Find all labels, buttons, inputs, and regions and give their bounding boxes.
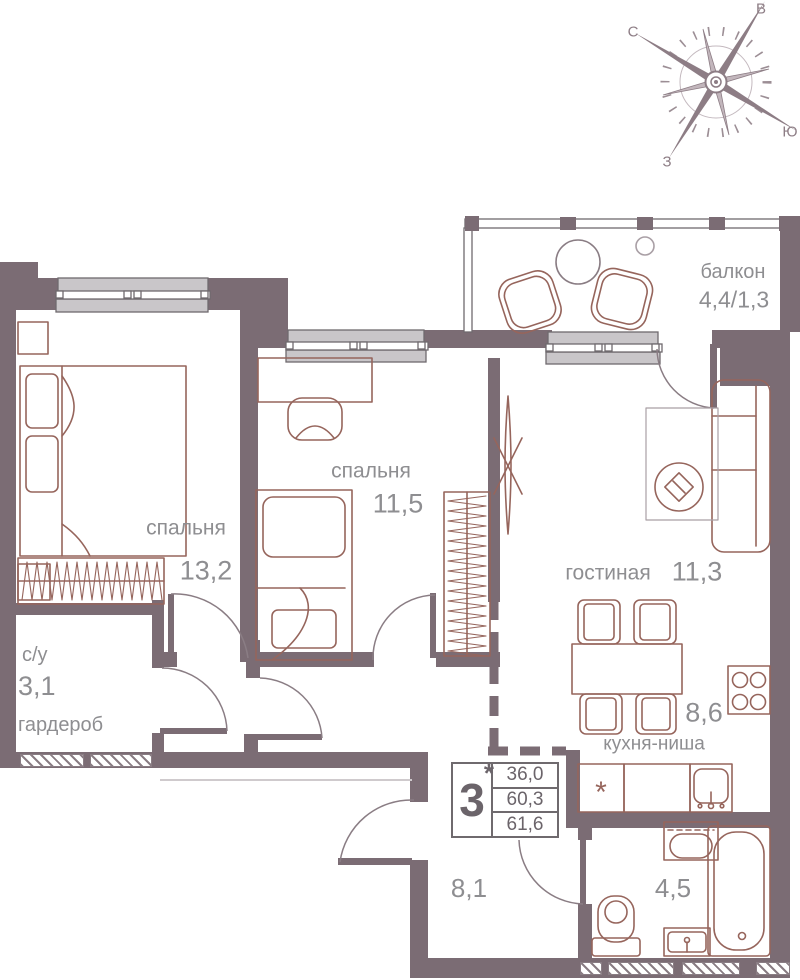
room-label-balcony: балкон bbox=[701, 262, 766, 282]
room-label-kitchen: кухня-ниша bbox=[603, 735, 705, 754]
kitchen-sink-icon bbox=[690, 764, 732, 812]
door-leaf bbox=[430, 593, 436, 658]
armchair-icon bbox=[495, 267, 566, 338]
chair-icon bbox=[580, 694, 622, 734]
room-area-kitchen: 8,6 bbox=[685, 700, 723, 727]
niche-dashed-wall bbox=[488, 600, 566, 751]
wardrobe-hangers-icon bbox=[444, 492, 490, 656]
entry-door-leaf bbox=[338, 858, 412, 865]
balcony-small-circle bbox=[636, 237, 654, 255]
door-leaf bbox=[168, 594, 174, 658]
room-label-su: с/у bbox=[22, 645, 48, 665]
wall-segment bbox=[16, 278, 62, 310]
stamp-rooms-count: 3 bbox=[459, 777, 485, 823]
room-area-su: 3,1 bbox=[18, 673, 56, 700]
wall-segment bbox=[152, 733, 164, 753]
door-leaf bbox=[160, 728, 227, 734]
exterior-edge-line bbox=[160, 779, 412, 781]
wall-segment bbox=[0, 278, 16, 768]
room-label-bedroom2: спальня bbox=[331, 461, 411, 482]
floor-plan: С В Ю З балкон 4,4/1,3 спальня 13,2 спал… bbox=[0, 0, 800, 980]
bathtub-icon bbox=[708, 826, 770, 956]
door-leaf bbox=[256, 734, 322, 740]
wardrobe-door-arc bbox=[162, 668, 227, 731]
room-area-hall: 8,1 bbox=[451, 875, 487, 901]
wall-segment bbox=[424, 330, 464, 348]
balcony-door-arc bbox=[657, 349, 714, 408]
wall-segment bbox=[566, 812, 790, 828]
chair-icon bbox=[636, 694, 676, 734]
room-label-living: гостиная bbox=[565, 563, 650, 584]
window bbox=[546, 332, 662, 364]
stamp-area: 60,3 bbox=[493, 787, 557, 812]
nightstand-icon bbox=[18, 564, 50, 600]
wall-segment bbox=[770, 330, 790, 978]
room-label-wardrobe: гардероб bbox=[18, 715, 103, 735]
chair-icon bbox=[578, 600, 620, 644]
chair-icon bbox=[288, 398, 342, 440]
nightstand-icon bbox=[18, 322, 48, 354]
counter-icon bbox=[624, 764, 690, 812]
window bbox=[286, 330, 428, 362]
wall-segment bbox=[436, 652, 500, 667]
stamp-rooms-count-cell: 3 * bbox=[453, 764, 493, 836]
compass-label-east: В bbox=[756, 2, 766, 17]
toilet-icon bbox=[592, 896, 640, 956]
rug-icon bbox=[646, 408, 718, 520]
wall-segment bbox=[16, 603, 164, 615]
vent-hatch bbox=[90, 754, 152, 767]
wall-segment bbox=[256, 330, 290, 348]
wall-segment bbox=[488, 358, 500, 602]
stove-icon bbox=[728, 666, 770, 714]
sofa-icon bbox=[712, 380, 770, 552]
room-area-balcony: 4,4/1,3 bbox=[699, 289, 769, 312]
entry-door-arc bbox=[340, 800, 414, 862]
compass-label-south: Ю bbox=[782, 125, 797, 140]
fridge-symbol: * bbox=[595, 778, 607, 808]
door-leaf bbox=[710, 344, 717, 408]
vent-hatch bbox=[682, 962, 740, 975]
vent-hatch bbox=[608, 962, 674, 975]
coffee-table-icon bbox=[655, 463, 703, 511]
vent-hatch bbox=[756, 962, 790, 975]
compass-label-north: С bbox=[628, 25, 639, 40]
room-area-bedroom2: 11,5 bbox=[373, 491, 424, 518]
stamp-living-area: 36,0 bbox=[493, 764, 557, 787]
wall-segment bbox=[256, 652, 374, 667]
armchair-icon bbox=[588, 265, 656, 333]
dining-table-icon bbox=[572, 644, 682, 694]
bedroom2-door-arc bbox=[373, 595, 435, 660]
desk-icon bbox=[258, 358, 372, 402]
vent-hatch bbox=[20, 754, 84, 767]
stamp-total-area: 61,6 bbox=[493, 811, 557, 836]
room-label-bedroom1: спальня bbox=[146, 518, 226, 539]
bath-sink-icon bbox=[664, 928, 710, 956]
room-area-bedroom1: 13,2 bbox=[180, 558, 233, 585]
wall-segment bbox=[780, 216, 800, 332]
single-bed-icon bbox=[256, 490, 352, 660]
area-stamp: 3 * 36,0 60,3 61,6 bbox=[451, 762, 559, 838]
compass-rose bbox=[635, 1, 797, 158]
vent-hatch bbox=[580, 962, 602, 975]
stamp-asterisk: * bbox=[484, 758, 494, 789]
balcony-table-icon bbox=[556, 240, 600, 284]
corridor-door-arc bbox=[260, 678, 322, 738]
window bbox=[56, 278, 210, 312]
bathroom-door-arc bbox=[519, 840, 583, 904]
room-area-living: 11,3 bbox=[672, 559, 723, 586]
stamp-values: 36,0 60,3 61,6 bbox=[493, 764, 557, 836]
chair-icon bbox=[634, 600, 676, 644]
room-area-bathroom: 4,5 bbox=[655, 875, 691, 901]
wardrobe-hangers-icon bbox=[18, 558, 164, 604]
compass-label-west: З bbox=[662, 155, 671, 170]
bedroom1-door-arc bbox=[171, 594, 248, 658]
door-leaf bbox=[580, 838, 586, 904]
wall-segment bbox=[462, 330, 552, 348]
